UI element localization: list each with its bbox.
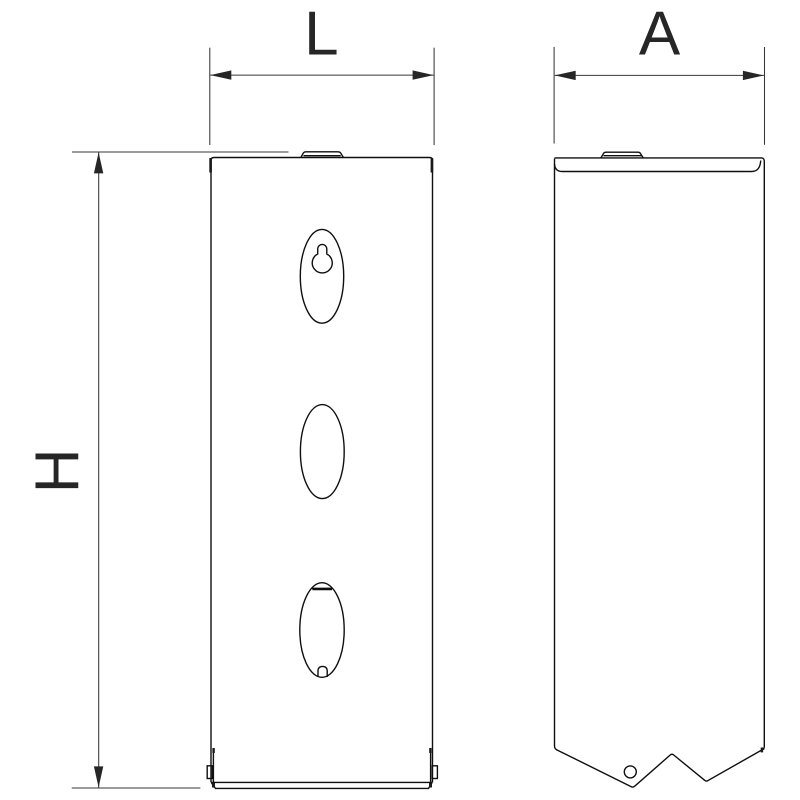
svg-text:A: A [639, 0, 681, 68]
svg-text:L: L [304, 0, 338, 68]
svg-text:H: H [23, 449, 92, 494]
